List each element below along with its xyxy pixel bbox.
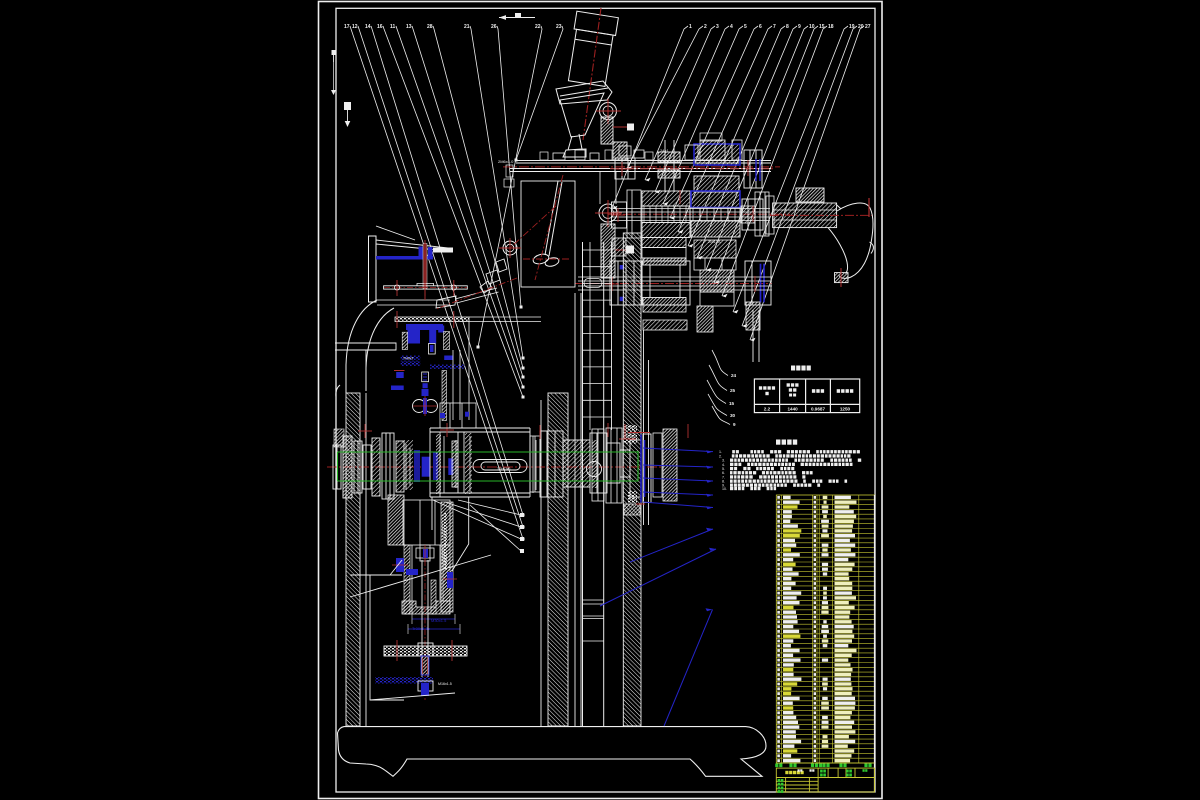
svg-text:22: 22 [535,24,541,30]
svg-text:0.9687: 0.9687 [811,406,825,411]
svg-text:Tr40x7: Tr40x7 [403,357,414,361]
svg-text:25: 25 [730,388,736,393]
svg-text:8: 8 [786,24,789,30]
svg-text:13: 13 [406,24,412,30]
svg-text:19: 19 [849,24,855,30]
svg-text:1: 1 [689,24,692,30]
svg-text:5: 5 [744,24,747,30]
svg-text:18: 18 [828,24,834,30]
svg-text:17: 17 [344,24,350,30]
svg-text:2.2: 2.2 [764,406,771,411]
svg-text:28: 28 [427,24,433,30]
svg-text:6: 6 [759,24,762,30]
svg-text:7: 7 [773,24,776,30]
svg-text:30: 30 [730,413,736,418]
svg-text:11: 11 [390,24,396,30]
svg-text:4: 4 [730,24,733,30]
svg-text:26: 26 [491,24,497,30]
svg-text:M16x1.5: M16x1.5 [438,682,452,686]
svg-text:30H7/k6: 30H7/k6 [497,467,510,471]
svg-text:27: 27 [865,24,871,30]
svg-text:3: 3 [716,24,719,30]
svg-text:1440: 1440 [787,406,798,411]
svg-text:14: 14 [365,24,371,30]
svg-text:9: 9 [733,422,736,427]
svg-text:15: 15 [819,24,825,30]
svg-text:2: 2 [704,24,707,30]
svg-text:21: 21 [464,24,470,30]
svg-text:24: 24 [731,373,737,378]
svg-text:16: 16 [377,24,383,30]
svg-text:1250: 1250 [840,406,851,411]
svg-text:12: 12 [352,24,358,30]
svg-text:2M6x1.0: 2M6x1.0 [498,159,514,164]
svg-text:23: 23 [556,24,562,30]
svg-text:10.: 10. [722,487,727,491]
svg-text:9: 9 [798,24,801,30]
svg-text:15: 15 [729,401,735,406]
